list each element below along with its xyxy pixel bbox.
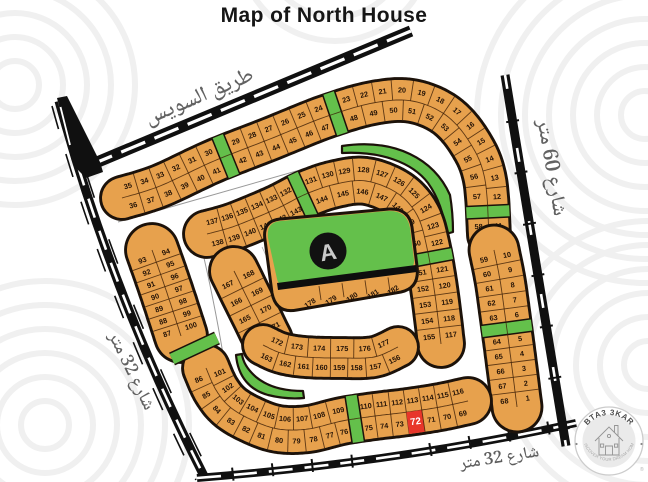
svg-text:68: 68: [500, 396, 509, 406]
svg-text:146: 146: [356, 187, 369, 197]
svg-text:61: 61: [485, 283, 494, 293]
svg-text:160: 160: [315, 363, 327, 372]
svg-text:159: 159: [333, 363, 345, 372]
svg-text:118: 118: [443, 313, 456, 323]
svg-text:79: 79: [292, 436, 300, 445]
svg-text:112: 112: [391, 397, 404, 407]
svg-text:62: 62: [487, 298, 496, 308]
svg-text:176: 176: [358, 344, 371, 354]
svg-text:106: 106: [279, 414, 292, 424]
svg-text:60: 60: [482, 269, 492, 279]
svg-text:®: ®: [640, 466, 644, 473]
svg-text:175: 175: [336, 344, 348, 353]
svg-text:13: 13: [490, 172, 500, 182]
svg-text:120: 120: [438, 280, 451, 291]
svg-text:21: 21: [378, 86, 387, 96]
svg-text:51: 51: [407, 106, 417, 116]
svg-text:152: 152: [416, 283, 429, 294]
svg-text:Map of North House: Map of North House: [221, 4, 428, 27]
svg-text:113: 113: [406, 395, 419, 406]
svg-text:78: 78: [309, 434, 319, 444]
svg-text:153: 153: [419, 300, 432, 310]
svg-text:107: 107: [296, 414, 309, 424]
svg-text:65: 65: [494, 352, 503, 362]
svg-text:57: 57: [472, 192, 481, 202]
svg-text:110: 110: [359, 401, 372, 411]
svg-text:12: 12: [493, 192, 502, 202]
svg-text:117: 117: [445, 329, 458, 339]
svg-text:121: 121: [435, 264, 448, 275]
svg-text:155: 155: [423, 332, 436, 342]
svg-text:173: 173: [290, 341, 303, 352]
svg-text:75: 75: [364, 423, 373, 433]
svg-text:73: 73: [395, 419, 404, 429]
svg-text:174: 174: [313, 344, 326, 353]
svg-text:72: 72: [409, 416, 421, 428]
svg-text:71: 71: [427, 415, 436, 425]
svg-text:119: 119: [441, 297, 454, 307]
svg-text:154: 154: [421, 316, 435, 326]
svg-text:80: 80: [275, 435, 284, 445]
svg-text:63: 63: [489, 313, 498, 323]
svg-text:49: 49: [369, 108, 379, 118]
svg-text:76: 76: [339, 427, 349, 437]
svg-text:158: 158: [350, 363, 362, 372]
svg-text:66: 66: [496, 366, 505, 376]
svg-text:67: 67: [498, 381, 507, 391]
svg-text:20: 20: [398, 85, 406, 94]
svg-text:161: 161: [297, 361, 310, 371]
svg-text:128: 128: [357, 165, 370, 175]
svg-text:111: 111: [375, 399, 387, 409]
svg-text:50: 50: [389, 105, 398, 115]
